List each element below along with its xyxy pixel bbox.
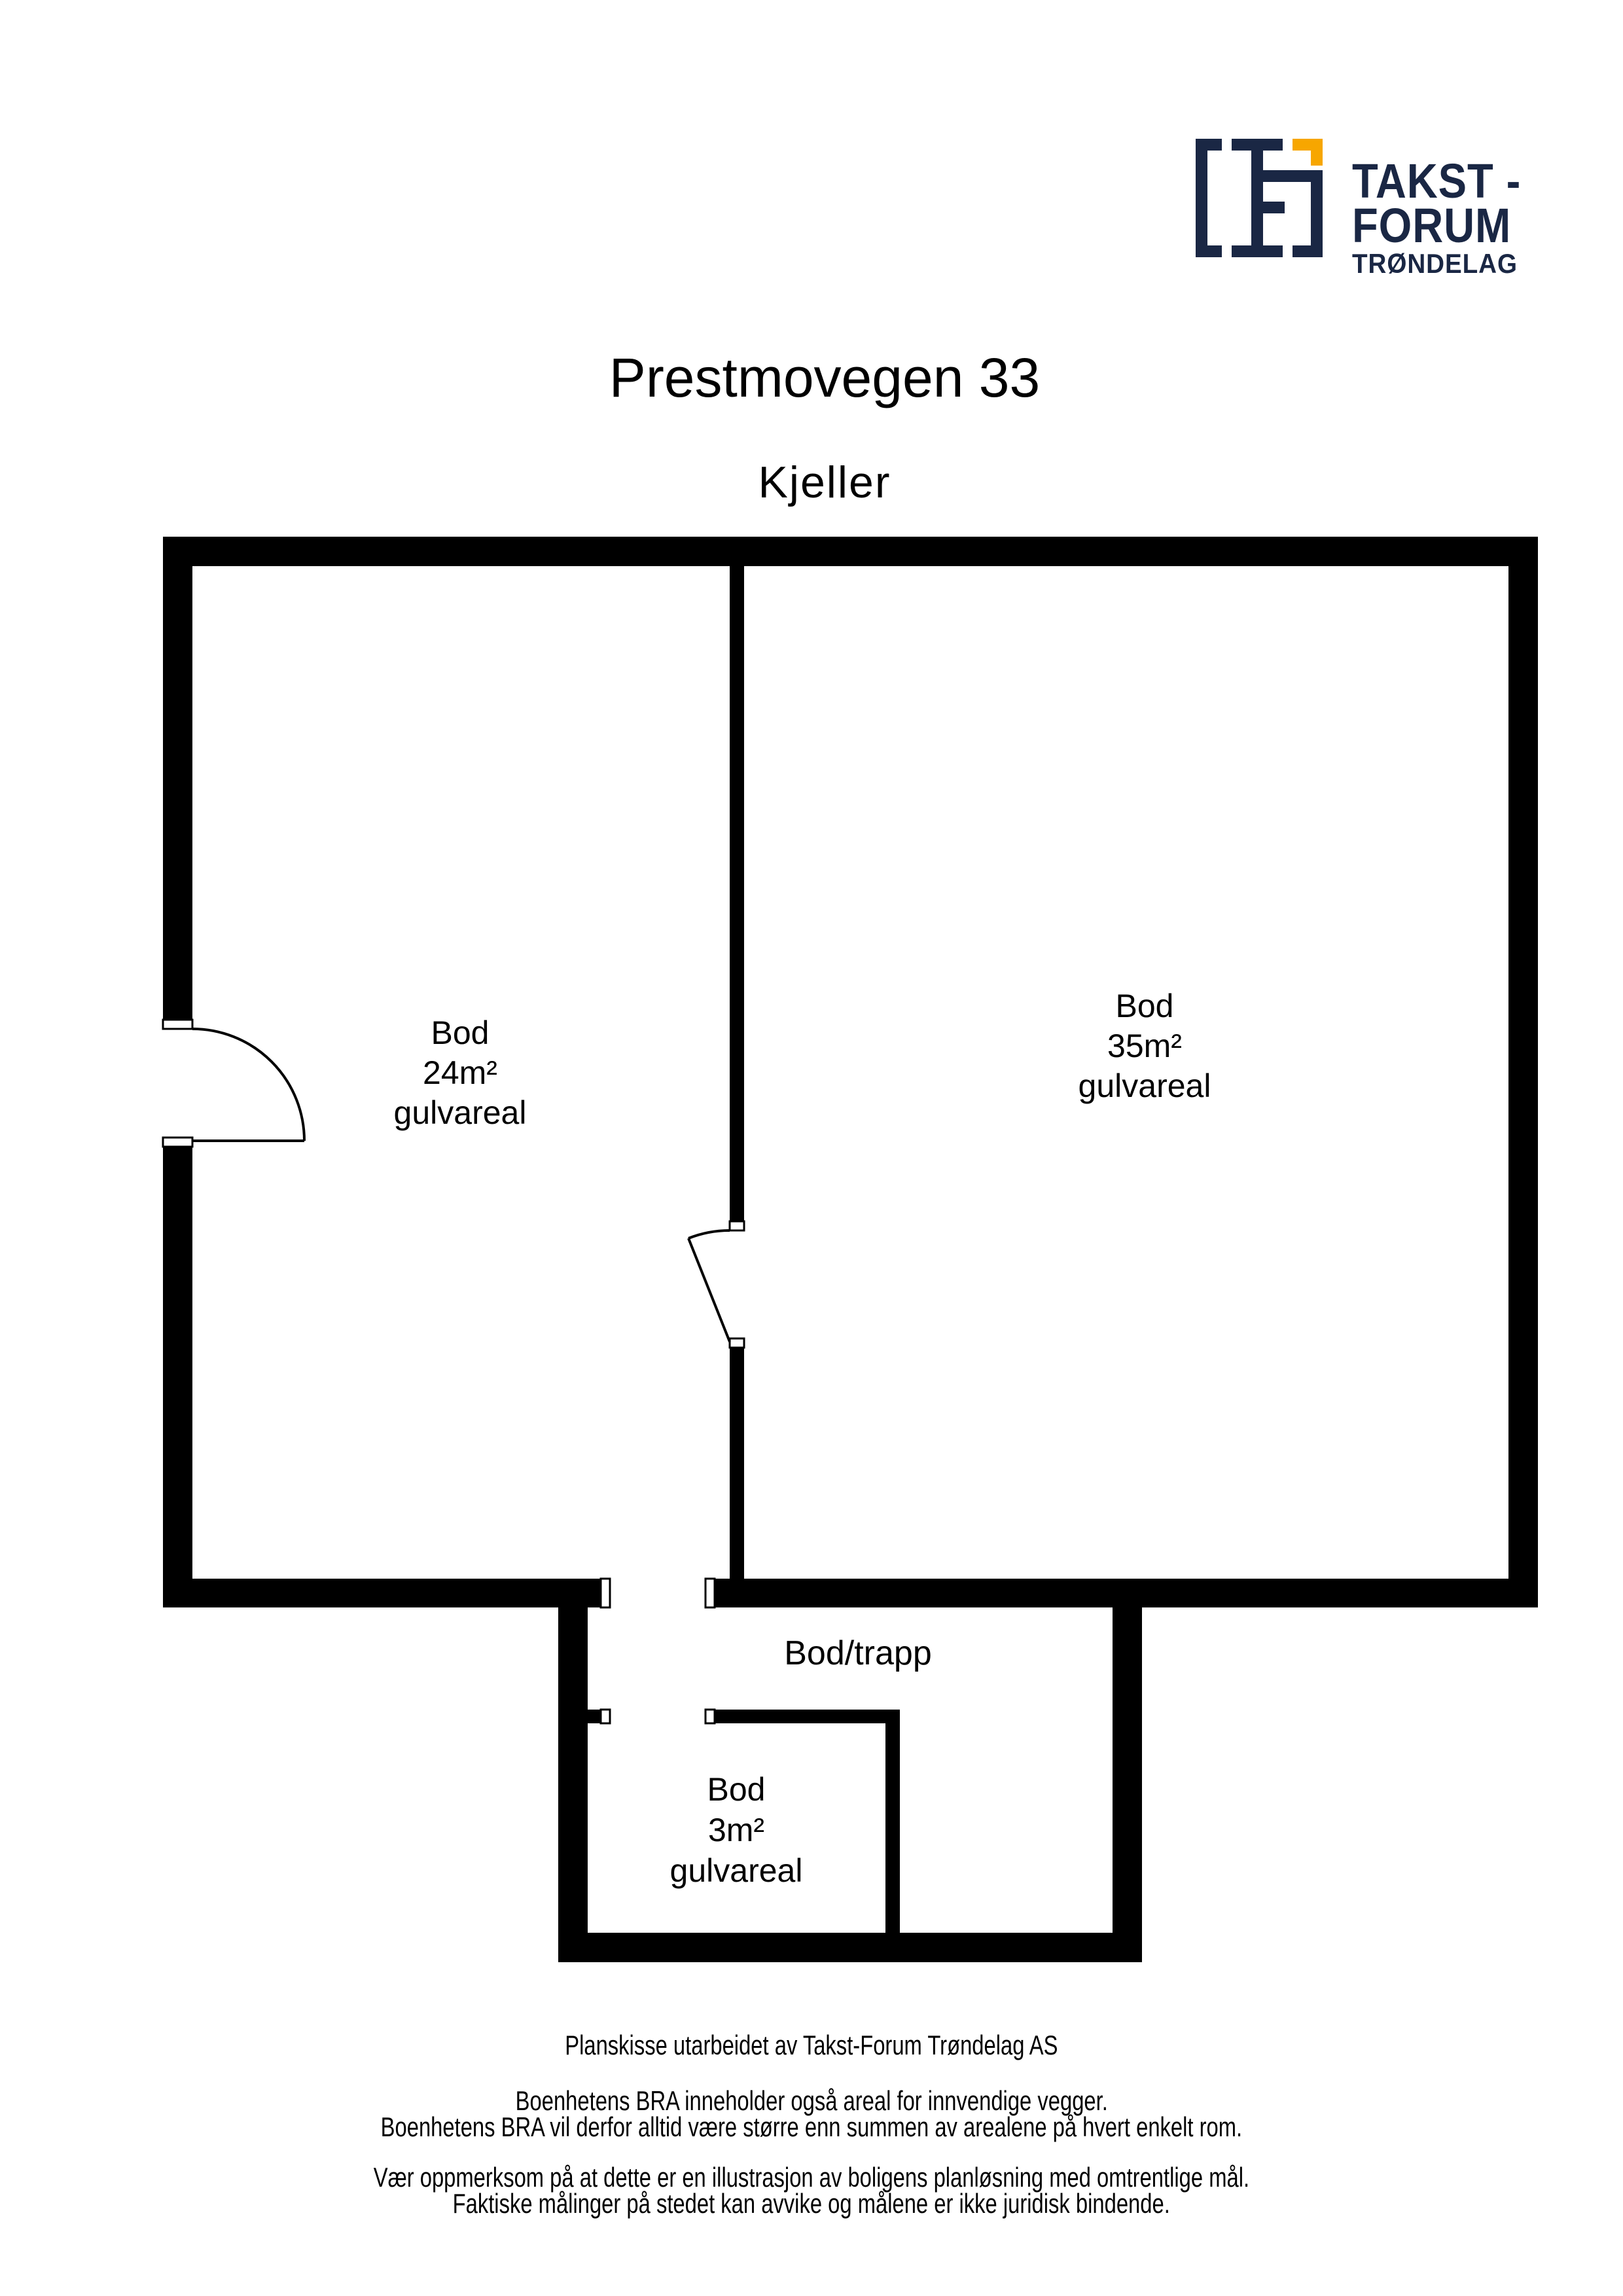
wall-annex-right [1113,1607,1142,1933]
room-label-bod-trapp: Bod/trapp [784,1636,932,1670]
room-label-bod-3: Bod 3m² gulvareal [670,1769,803,1891]
room-label-bod-35: Bod 35m² gulvareal [1079,986,1211,1106]
floorplan-page: TAKST - FORUM TRØNDELAG Prestmovegen 33 … [0,0,1623,2296]
wall-bod3-right [885,1710,900,1933]
jamb-bod3-opening-left [601,1710,610,1723]
door-leaf-middle [688,1238,730,1342]
room-detail: gulvareal [1079,1066,1211,1106]
wall-top [163,537,1538,566]
door-arc-middle [688,1230,730,1238]
room-name: Bod/trapp [784,1636,932,1670]
floorplan-drawing [0,0,1623,2296]
jamb-left-door-top [163,1020,192,1029]
footer-disclaimer-2: Faktiske målinger på stedet kan avvike o… [0,2190,1623,2217]
footer-credit: Planskisse utarbeidet av Takst-Forum Trø… [0,2032,1623,2059]
room-area: 35m² [1079,1026,1211,1066]
wall-bottom-left [163,1579,601,1607]
footer-disclaimer-1-text: Vær oppmerksom på at dette er en illustr… [374,2164,1249,2191]
wall-bod3-top-stub [588,1710,601,1723]
footer-disclaimer-1: Vær oppmerksom på at dette er en illustr… [0,2164,1623,2191]
footer-bra-note-2-text: Boenhetens BRA vil derfor alltid være st… [381,2113,1243,2141]
room-area: 3m² [670,1810,803,1850]
wall-annex-bottom [558,1933,1142,1962]
footer-disclaimer-2-text: Faktiske målinger på stedet kan avvike o… [453,2190,1170,2217]
room-name: Bod [1079,986,1211,1026]
wall-left-upper [163,537,192,1020]
jamb-bod3-opening-right [705,1710,715,1723]
room-label-bod-24: Bod 24m² gulvareal [394,1013,527,1133]
jamb-bottom-opening-left [601,1579,610,1607]
wall-annex-left [558,1607,588,1933]
wall-bod3-top-right [715,1710,900,1723]
footer-bra-note-1-text: Boenhetens BRA inneholder også areal for… [515,2087,1107,2115]
footer-credit-text: Planskisse utarbeidet av Takst-Forum Trø… [565,2032,1058,2059]
jamb-left-door-bottom [163,1138,192,1147]
room-name: Bod [670,1769,803,1810]
jamb-bottom-opening-right [705,1579,715,1607]
footer-bra-note-1: Boenhetens BRA inneholder også areal for… [0,2087,1623,2115]
room-name: Bod [394,1013,527,1053]
footer-bra-note-2: Boenhetens BRA vil derfor alltid være st… [0,2113,1623,2141]
door-arc-left-exterior [192,1029,304,1141]
room-detail: gulvareal [670,1850,803,1891]
jamb-middle-door-top [730,1221,744,1230]
room-detail: gulvareal [394,1093,527,1133]
wall-right [1508,537,1538,1607]
wall-middle-upper [730,566,744,1221]
room-area: 24m² [394,1053,527,1093]
jamb-middle-door-bottom [730,1338,744,1348]
wall-middle-lower [730,1348,744,1579]
wall-left-lower [163,1147,192,1607]
wall-bottom-right [715,1579,1538,1607]
